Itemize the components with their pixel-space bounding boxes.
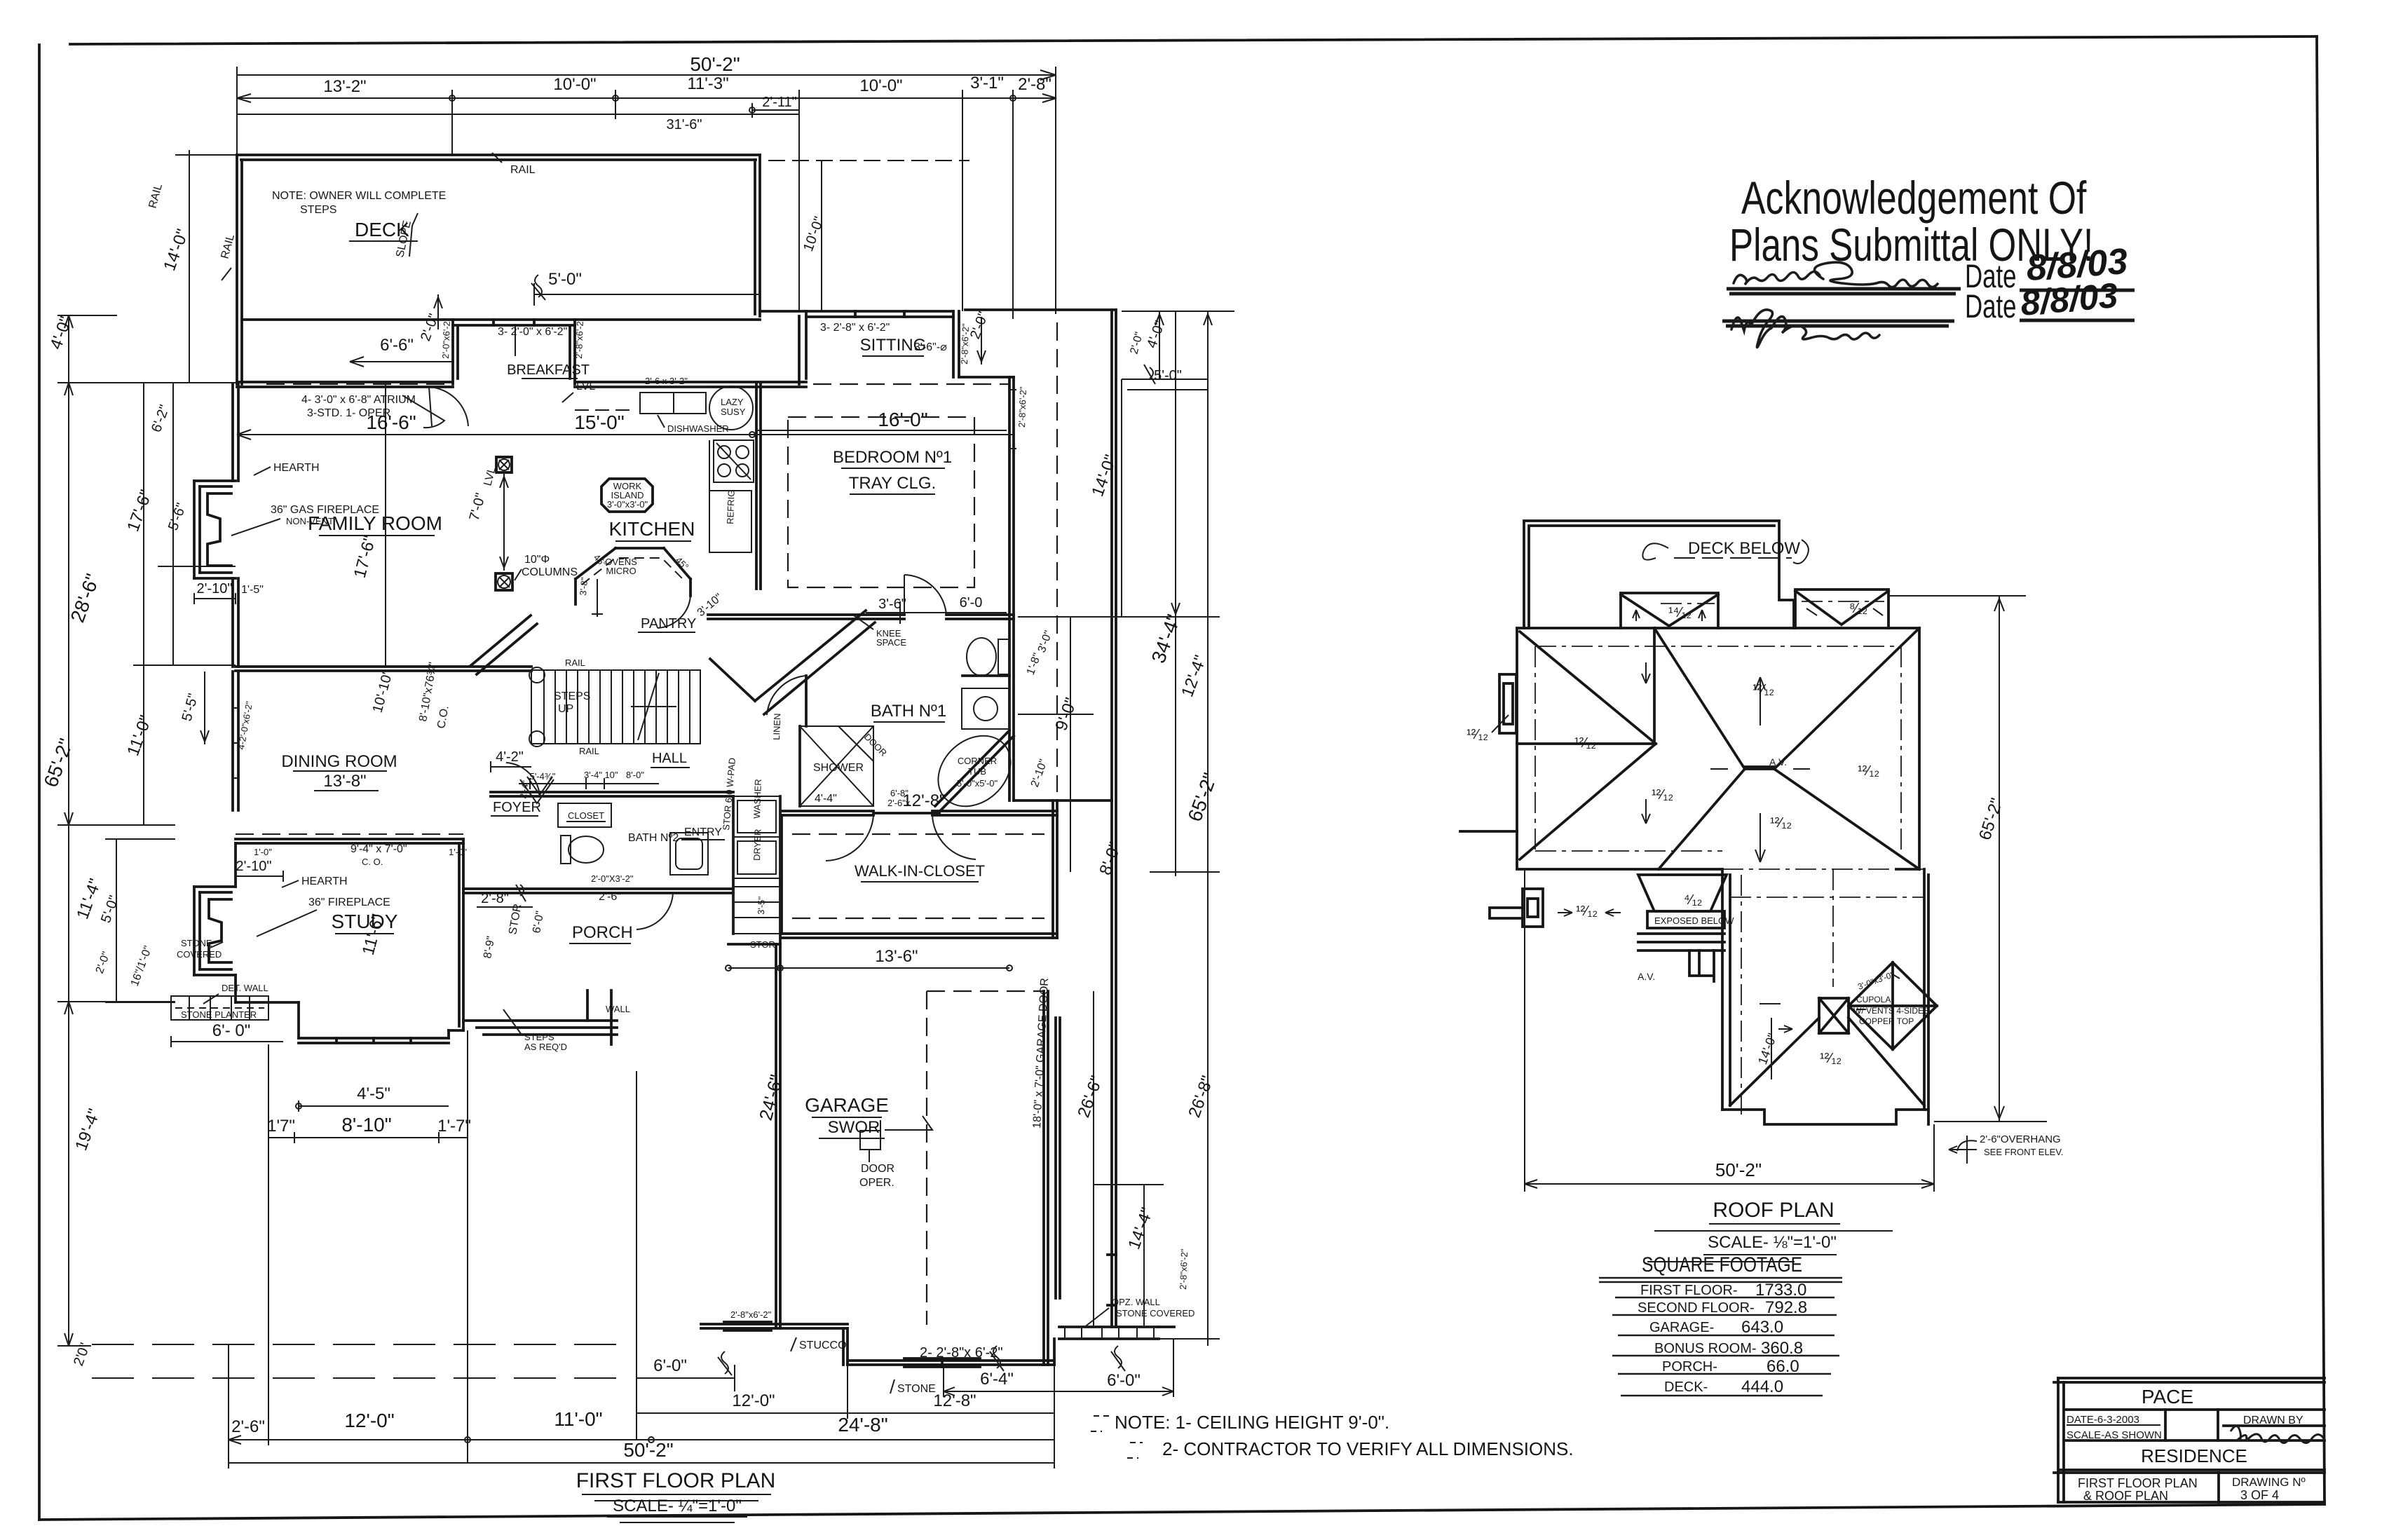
svg-text:DISHWASHER: DISHWASHER xyxy=(667,423,729,434)
svg-text:2'-0"x6'-2": 2'-0"x6'-2" xyxy=(440,318,452,359)
svg-text:W/ VENTS 4-SIDES: W/ VENTS 4-SIDES xyxy=(1853,1006,1929,1016)
svg-text:BONUS ROOM-: BONUS ROOM- xyxy=(1654,1341,1757,1356)
svg-text:DRAWN BY: DRAWN BY xyxy=(2243,1415,2303,1426)
svg-text:2'-8"x6'-2": 2'-8"x6'-2" xyxy=(1178,1248,1190,1290)
svg-text:10'-0": 10'-0" xyxy=(553,75,596,94)
svg-text:13'-8": 13'-8" xyxy=(323,772,366,791)
svg-text:12'-0": 12'-0" xyxy=(732,1391,775,1410)
svg-text:TRAY CLG.: TRAY CLG. xyxy=(849,474,936,493)
svg-text:STONE: STONE xyxy=(897,1383,936,1395)
svg-text:3'-8": 3'-8" xyxy=(578,577,590,596)
svg-text:2'-8"x6'-2": 2'-8"x6'-2" xyxy=(1016,386,1028,428)
svg-text:ROOF PLAN: ROOF PLAN xyxy=(1713,1199,1834,1222)
svg-text:2'-8"x6'-2": 2'-8"x6'-2" xyxy=(959,323,971,364)
svg-text:2'-6 x 3'-2": 2'-6 x 3'-2" xyxy=(645,376,688,386)
svg-text:RAIL: RAIL xyxy=(565,657,585,668)
svg-text:EXPOSED BELOW: EXPOSED BELOW xyxy=(1654,915,1734,926)
svg-text:11'-0": 11'-0" xyxy=(554,1408,602,1430)
svg-text:4'-5": 4'-5" xyxy=(357,1084,390,1103)
svg-text:¹²⁄₁₂: ¹²⁄₁₂ xyxy=(1752,682,1774,697)
svg-text:¹²⁄₁₂: ¹²⁄₁₂ xyxy=(1466,727,1488,742)
svg-text:COVERED: COVERED xyxy=(177,949,222,960)
svg-text:360.8: 360.8 xyxy=(1761,1339,1803,1358)
svg-text:STONE COVERED: STONE COVERED xyxy=(1116,1308,1194,1318)
svg-text:DRYER: DRYER xyxy=(751,829,763,861)
svg-text:5'-0": 5'-0" xyxy=(1154,368,1182,383)
svg-text:SQUARE FOOTAGE: SQUARE FOOTAGE xyxy=(1642,1253,1802,1276)
svg-text:3- 2'-0" x 6'-2": 3- 2'-0" x 6'-2" xyxy=(498,326,567,338)
svg-text:10'-0": 10'-0" xyxy=(859,76,902,95)
svg-text:9'-4" x 7'-0": 9'-4" x 7'-0" xyxy=(350,843,407,855)
svg-text:CLOSET: CLOSET xyxy=(568,810,604,821)
svg-text:NOTE: OWNER WILL COMPLETE: NOTE: OWNER WILL COMPLETE xyxy=(272,190,446,202)
svg-text:BATH Nº2: BATH Nº2 xyxy=(628,832,679,844)
svg-text:RESIDENCE: RESIDENCE xyxy=(2141,1445,2247,1466)
svg-text:16'-6": 16'-6" xyxy=(366,411,416,433)
svg-text:MICRO: MICRO xyxy=(606,566,636,576)
svg-text:STEPS: STEPS xyxy=(300,204,336,216)
svg-text:HEARTH: HEARTH xyxy=(301,875,348,887)
svg-text:1'7": 1'7" xyxy=(267,1117,295,1136)
svg-text:DET. WALL: DET. WALL xyxy=(222,983,268,993)
svg-text:OPZ. WALL: OPZ. WALL xyxy=(1112,1297,1160,1307)
svg-text:CUPOLA: CUPOLA xyxy=(1856,995,1891,1004)
svg-text:2'-8"x6'-2": 2'-8"x6'-2" xyxy=(730,1309,772,1320)
svg-text:HALL: HALL xyxy=(652,751,687,766)
svg-text:WASHER: WASHER xyxy=(751,779,763,819)
svg-text:WALL: WALL xyxy=(606,1004,630,1014)
svg-text:BATH Nº1: BATH Nº1 xyxy=(871,702,946,721)
svg-text:Date: Date xyxy=(1965,288,2016,325)
svg-text:13'-2": 13'-2" xyxy=(323,77,366,96)
svg-text:16'-0": 16'-0" xyxy=(878,409,927,430)
svg-text:2- CONTRACTOR TO VERIFY ALL DI: 2- CONTRACTOR TO VERIFY ALL DIMENSIONS. xyxy=(1162,1438,1574,1459)
svg-text:STONE PLANTER: STONE PLANTER xyxy=(181,1009,257,1020)
svg-text:& ROOF PLAN: & ROOF PLAN xyxy=(2083,1489,2168,1503)
svg-text:6'- 0": 6'- 0" xyxy=(212,1021,250,1040)
svg-text:¹⁴⁄₁₂: ¹⁴⁄₁₂ xyxy=(1668,605,1692,620)
svg-text:6'-4": 6'-4" xyxy=(980,1370,1014,1389)
svg-text:DECK-: DECK- xyxy=(1664,1379,1708,1395)
svg-text:DATE-6-3-2003: DATE-6-3-2003 xyxy=(2067,1414,2139,1426)
svg-text:66.0: 66.0 xyxy=(1767,1357,1799,1376)
svg-text:FIRST FLOOR PLAN: FIRST FLOOR PLAN xyxy=(2078,1476,2198,1490)
svg-text:COLUMNS: COLUMNS xyxy=(522,566,578,578)
svg-text:FOYER: FOYER xyxy=(493,800,541,815)
svg-text:STONE: STONE xyxy=(181,938,212,948)
svg-text:2'-6"x: 2'-6"x xyxy=(887,798,911,808)
svg-text:3'-6"-⌀: 3'-6"-⌀ xyxy=(914,341,947,353)
svg-text:10"Φ: 10"Φ xyxy=(524,554,550,566)
svg-text:2'-10": 2'-10" xyxy=(236,859,272,874)
svg-text:LAZY: LAZY xyxy=(721,397,744,407)
svg-text:DRAWING Nº: DRAWING Nº xyxy=(2232,1476,2306,1489)
svg-text:¹²⁄₁₂: ¹²⁄₁₂ xyxy=(1574,735,1596,751)
svg-text:2'-11": 2'-11" xyxy=(762,95,796,110)
svg-text:8'-10": 8'-10" xyxy=(341,1114,391,1136)
svg-text:SEE FRONT ELEV.: SEE FRONT ELEV. xyxy=(1984,1147,2063,1157)
svg-text:36" FIREPLACE: 36" FIREPLACE xyxy=(308,897,390,908)
svg-text:3'-0"x3'-0": 3'-0"x3'-0" xyxy=(607,499,648,510)
svg-text:2'-6"OVERHANG: 2'-6"OVERHANG xyxy=(1980,1133,2061,1145)
svg-text:1733.0: 1733.0 xyxy=(1755,1281,1806,1300)
svg-text:792.8: 792.8 xyxy=(1765,1298,1807,1317)
svg-text:DECK BELOW: DECK BELOW xyxy=(1688,539,1800,558)
svg-text:2'-8": 2'-8" xyxy=(1018,75,1051,94)
svg-text:KITCHEN: KITCHEN xyxy=(609,518,695,540)
svg-text:⁴⁄₁₂: ⁴⁄₁₂ xyxy=(1684,892,1702,908)
svg-text:⁸⁄₁₂: ⁸⁄₁₂ xyxy=(1849,601,1867,616)
svg-text:50'-2": 50'-2" xyxy=(623,1439,673,1461)
svg-text:STEPS: STEPS xyxy=(524,1032,554,1042)
svg-text:643.0: 643.0 xyxy=(1741,1318,1783,1337)
svg-text:SPACE: SPACE xyxy=(876,637,906,648)
svg-text:6'-0: 6'-0 xyxy=(960,595,983,611)
svg-text:BEDROOM Nº1: BEDROOM Nº1 xyxy=(833,448,952,467)
svg-text:4'-4": 4'-4" xyxy=(815,793,837,805)
svg-text:2'-6": 2'-6" xyxy=(231,1417,265,1436)
svg-text:WALK-IN-CLOSET: WALK-IN-CLOSET xyxy=(855,862,985,880)
svg-text:1'-0": 1'-0" xyxy=(449,847,467,857)
svg-text:GARAGE-: GARAGE- xyxy=(1649,1320,1714,1335)
svg-text:6'-0": 6'-0" xyxy=(653,1356,687,1375)
svg-text:COPPER TOP: COPPER TOP xyxy=(1859,1016,1914,1026)
svg-text:2'-8": 2'-8" xyxy=(481,891,509,906)
svg-text:4- 3'-0" x 6'-8" ATRIUM: 4- 3'-0" x 6'-8" ATRIUM xyxy=(301,394,416,406)
svg-text:SHOWER: SHOWER xyxy=(813,762,864,774)
svg-text:3'-6": 3'-6" xyxy=(878,597,906,612)
svg-text:3 OF 4: 3 OF 4 xyxy=(2240,1488,2279,1502)
svg-text:12'-8": 12'-8" xyxy=(933,1391,976,1410)
svg-text:REFRIG: REFRIG xyxy=(725,489,737,524)
svg-text:BREAKFAST: BREAKFAST xyxy=(507,362,590,378)
svg-text:50'-2": 50'-2" xyxy=(690,53,740,75)
svg-text:CORNER: CORNER xyxy=(958,756,997,766)
svg-text:5'-0": 5'-0" xyxy=(548,270,582,289)
svg-text:31'-6": 31'-6" xyxy=(667,117,702,132)
svg-text:3- 2'-8" x 6'-2": 3- 2'-8" x 6'-2" xyxy=(820,322,890,334)
svg-text:8'-0": 8'-0" xyxy=(626,770,644,780)
svg-text:¹²⁄₁₂: ¹²⁄₁₂ xyxy=(1576,904,1598,919)
svg-text:50'-2": 50'-2" xyxy=(1715,1159,1762,1180)
svg-text:1'-5": 1'-5" xyxy=(241,584,264,596)
svg-text:HEARTH: HEARTH xyxy=(273,462,320,474)
svg-text:PORCH-: PORCH- xyxy=(1662,1359,1717,1375)
svg-text:FIRST FLOOR PLAN: FIRST FLOOR PLAN xyxy=(576,1469,776,1492)
svg-text:15'-0": 15'-0" xyxy=(574,411,624,433)
svg-text:RAIL: RAIL xyxy=(579,746,599,756)
svg-text:STUCCO: STUCCO xyxy=(799,1340,847,1351)
svg-text:PANTRY: PANTRY xyxy=(641,616,696,632)
svg-text:¹²⁄₁₂: ¹²⁄₁₂ xyxy=(1820,1051,1842,1066)
svg-text:1'-7": 1'-7" xyxy=(437,1117,471,1136)
svg-text:4'-2": 4'-2" xyxy=(496,749,524,765)
svg-text:ENTRY: ENTRY xyxy=(684,826,722,838)
svg-text:24'-8": 24'-8" xyxy=(838,1414,887,1436)
svg-text:AS REQ'D: AS REQ'D xyxy=(524,1042,567,1052)
svg-text:13'-6": 13'-6" xyxy=(875,947,918,966)
svg-text:12'-0": 12'-0" xyxy=(344,1410,394,1431)
svg-text:SCALE- ⅛"=1'-0": SCALE- ⅛"=1'-0" xyxy=(1708,1233,1837,1252)
svg-text:STEPS: STEPS xyxy=(554,690,590,702)
svg-text:SCALE-AS SHOWN: SCALE-AS SHOWN xyxy=(2067,1429,2162,1441)
svg-text:3'-4": 3'-4" xyxy=(584,770,602,780)
svg-text:NON-VENT: NON-VENT xyxy=(286,516,334,526)
svg-text:5'-0"x5'-0": 5'-0"x5'-0" xyxy=(957,778,998,789)
svg-text:DINING ROOM: DINING ROOM xyxy=(281,752,397,771)
svg-text:6'-6": 6'-6" xyxy=(380,336,414,355)
svg-text:STOR: STOR xyxy=(750,939,775,950)
svg-text:OPER.: OPER. xyxy=(859,1177,894,1189)
svg-text:DOOR: DOOR xyxy=(861,1163,894,1175)
svg-text:1'-0": 1'-0" xyxy=(254,847,272,857)
svg-text:SWOR: SWOR xyxy=(828,1118,880,1137)
svg-text:NOTE: 1- CEILING HEIGHT 9'-0".: NOTE: 1- CEILING HEIGHT 9'-0". xyxy=(1115,1412,1389,1433)
svg-text:2'-10": 2'-10" xyxy=(197,581,233,597)
svg-text:PORCH: PORCH xyxy=(572,923,633,942)
svg-text:SCALE- ¼"=1'-0": SCALE- ¼"=1'-0" xyxy=(613,1497,742,1515)
svg-text:¹²⁄₁₂: ¹²⁄₁₂ xyxy=(1858,763,1879,779)
svg-text:2'-8"x6'-2": 2'-8"x6'-2" xyxy=(573,318,585,359)
svg-text:36" GAS FIREPLACE: 36" GAS FIREPLACE xyxy=(271,504,379,516)
svg-text:SUSY: SUSY xyxy=(721,407,746,417)
svg-text:SECOND FLOOR-: SECOND FLOOR- xyxy=(1638,1300,1755,1316)
svg-text:444.0: 444.0 xyxy=(1741,1377,1783,1396)
svg-text:A.V.: A.V. xyxy=(1638,971,1655,982)
svg-text:C. O.: C. O. xyxy=(362,857,383,867)
svg-text:6'-8": 6'-8" xyxy=(890,788,908,798)
svg-text:Acknowledgement Of: Acknowledgement Of xyxy=(1741,172,2087,224)
svg-text:GARAGE: GARAGE xyxy=(805,1094,889,1116)
svg-text:FIRST FLOOR-: FIRST FLOOR- xyxy=(1640,1283,1738,1298)
svg-text:RAIL: RAIL xyxy=(510,164,536,176)
svg-text:6'-0": 6'-0" xyxy=(1107,1371,1141,1390)
svg-text:TUB: TUB xyxy=(968,766,986,777)
svg-text:¹²⁄₁₂: ¹²⁄₁₂ xyxy=(1770,815,1792,831)
svg-text:2'-0"X3'-2": 2'-0"X3'-2" xyxy=(591,873,634,884)
svg-text:10": 10" xyxy=(604,770,618,780)
svg-text:UP: UP xyxy=(558,703,573,715)
svg-text:3'-1": 3'-1" xyxy=(970,74,1004,93)
svg-text:2'-6": 2'-6" xyxy=(599,891,621,903)
svg-text:11'-3": 11'-3" xyxy=(687,74,728,93)
svg-text:LINEN: LINEN xyxy=(771,713,782,740)
svg-text:3'-5": 3'-5" xyxy=(756,896,767,915)
svg-text:A.V.: A.V. xyxy=(1769,756,1787,768)
svg-text:¹²⁄₁₂: ¹²⁄₁₂ xyxy=(1652,787,1673,803)
svg-text:PACE: PACE xyxy=(2142,1386,2193,1408)
